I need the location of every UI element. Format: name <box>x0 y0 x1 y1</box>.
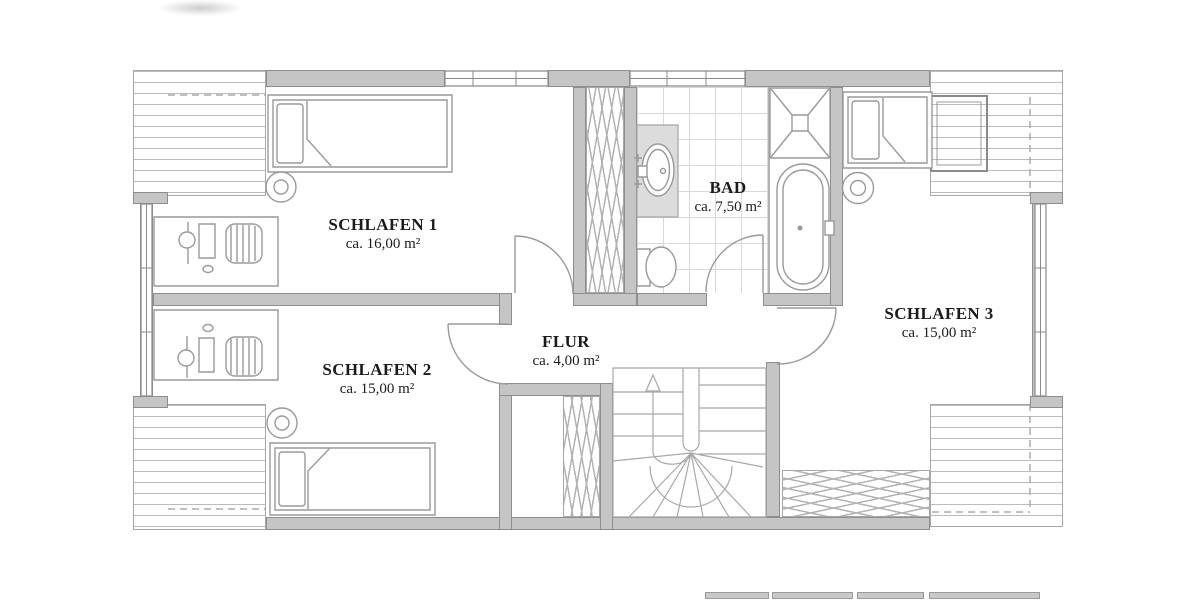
closet-strip-schlafen3 <box>782 470 930 517</box>
stool-schlafen1 <box>266 172 296 202</box>
room-name: BAD <box>695 178 762 198</box>
chair-schlafen1 <box>226 224 262 263</box>
staircase <box>613 368 766 517</box>
door-schlafen3 <box>777 308 836 364</box>
room-area: ca. 4,00 m² <box>533 351 600 370</box>
bed-schlafen1 <box>268 95 452 172</box>
room-area: ca. 16,00 m² <box>328 234 437 253</box>
wall-bath-bottom-a <box>637 293 707 306</box>
closet-strip-stair-left <box>563 396 600 517</box>
door-schlafen2 <box>448 324 508 384</box>
chair-schlafen2 <box>226 337 262 376</box>
wall-flur-bottom <box>499 383 613 396</box>
wall-stair-left <box>600 383 613 530</box>
room-name: SCHLAFEN 1 <box>328 215 437 235</box>
room-area: ca. 15,00 m² <box>884 323 993 342</box>
floor-plan-canvas: SCHLAFEN 1 ca. 16,00 m² SCHLAFEN 2 ca. 1… <box>0 0 1200 600</box>
door-schlafen1 <box>515 236 573 294</box>
wall-right-stub-bottom <box>1030 396 1063 408</box>
room-label-bad: BAD ca. 7,50 m² <box>695 178 762 216</box>
wall-left <box>140 196 153 404</box>
room-name: SCHLAFEN 3 <box>884 304 993 324</box>
wall-bottom <box>266 517 930 530</box>
roof-hatch-bottom-left <box>133 404 266 530</box>
cutoff-bar-segment <box>857 592 924 599</box>
stair-up-arrow <box>646 375 690 464</box>
wall-right <box>1032 196 1045 404</box>
wall-stair-right <box>766 362 780 517</box>
wall-divider-s1-s2 <box>153 293 512 306</box>
room-label-schlafen-3: SCHLAFEN 3 ca. 15,00 m² <box>884 304 993 342</box>
room-area: ca. 15,00 m² <box>322 379 431 398</box>
room-name: FLUR <box>533 332 600 352</box>
roof-hatch-top-right <box>930 70 1063 196</box>
room-label-schlafen-1: SCHLAFEN 1 ca. 16,00 m² <box>328 215 437 253</box>
room-name: SCHLAFEN 2 <box>322 360 431 380</box>
cutoff-bar-segment <box>929 592 1040 599</box>
wall-left-stub-top <box>133 192 168 204</box>
bed-schlafen2 <box>270 443 435 515</box>
wall-closet1-bottom <box>573 293 637 306</box>
desk-schlafen2 <box>154 310 278 380</box>
stool-schlafen3 <box>843 173 874 204</box>
stool-schlafen2 <box>267 408 297 438</box>
closet-strip-bath-left <box>586 87 624 293</box>
wall-closet1-left <box>573 87 586 306</box>
cutoff-bar-segment <box>705 592 769 599</box>
wall-left-stub-bottom <box>133 396 168 408</box>
wall-flur-left-lower <box>499 383 512 530</box>
wall-bath-right <box>830 87 843 306</box>
window-top-bath <box>630 71 745 86</box>
window-top-schlafen1 <box>445 71 548 86</box>
bed-schlafen3 <box>843 92 932 168</box>
wall-top-c <box>745 70 930 87</box>
wall-right-stub-top <box>1030 192 1063 204</box>
wall-top-a <box>266 70 445 87</box>
wall-closet1-right <box>624 87 637 306</box>
watermark-smudge <box>158 0 243 16</box>
roof-hatch-bottom-right <box>930 404 1063 527</box>
wall-flur-left-upper <box>499 293 512 325</box>
wall-top-b <box>548 70 630 87</box>
roof-hatch-top-left <box>133 70 266 196</box>
room-label-schlafen-2: SCHLAFEN 2 ca. 15,00 m² <box>322 360 431 398</box>
room-area: ca. 7,50 m² <box>695 197 762 216</box>
room-label-flur: FLUR ca. 4,00 m² <box>533 332 600 370</box>
bathroom-tub-alcove <box>768 87 830 293</box>
cutoff-bar-segment <box>772 592 853 599</box>
desk-schlafen1 <box>154 217 278 286</box>
